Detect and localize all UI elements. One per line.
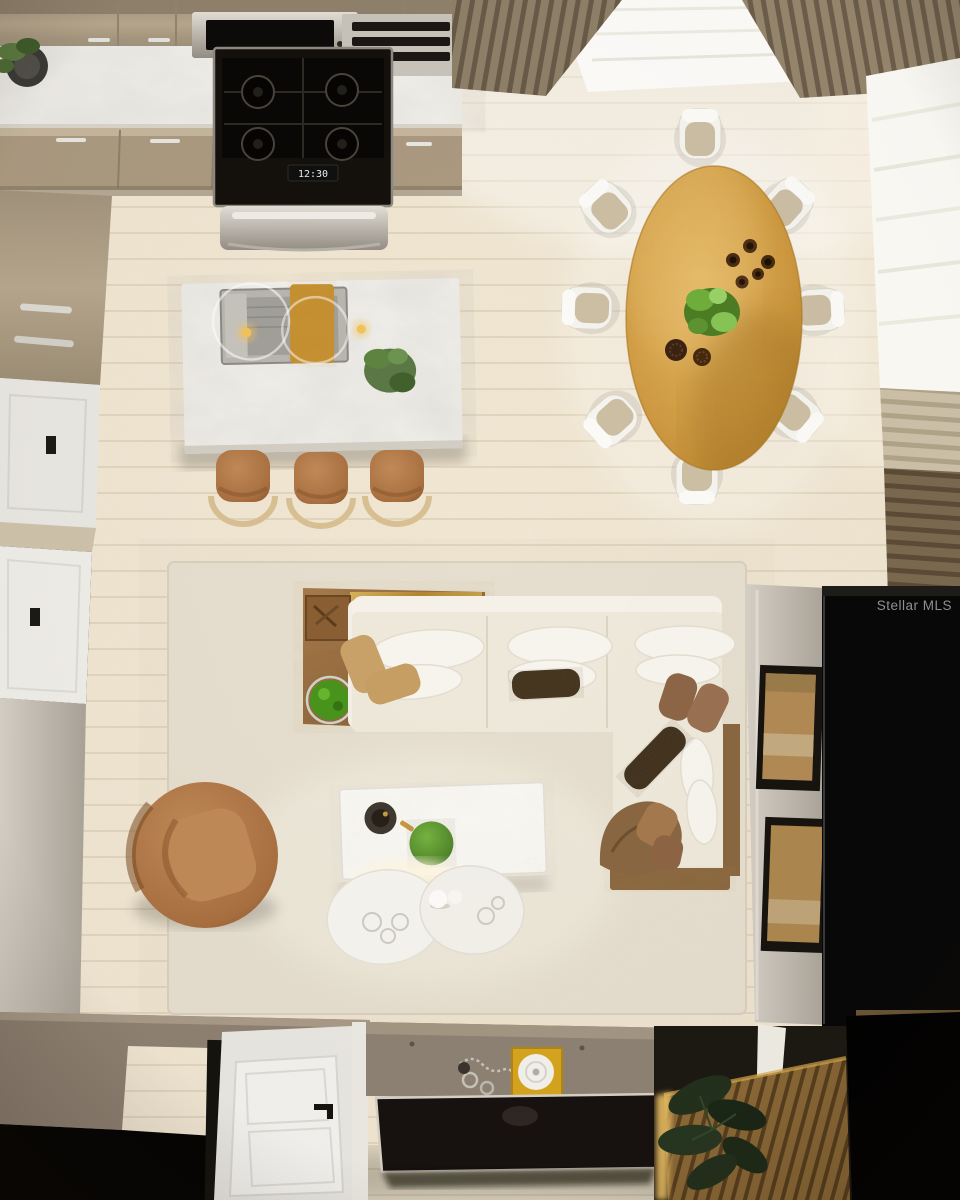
apartment-topdown-render: 12:30 [0,0,960,1200]
vignette-overlay [0,0,960,1200]
render-canvas: 12:30 [0,0,960,1200]
